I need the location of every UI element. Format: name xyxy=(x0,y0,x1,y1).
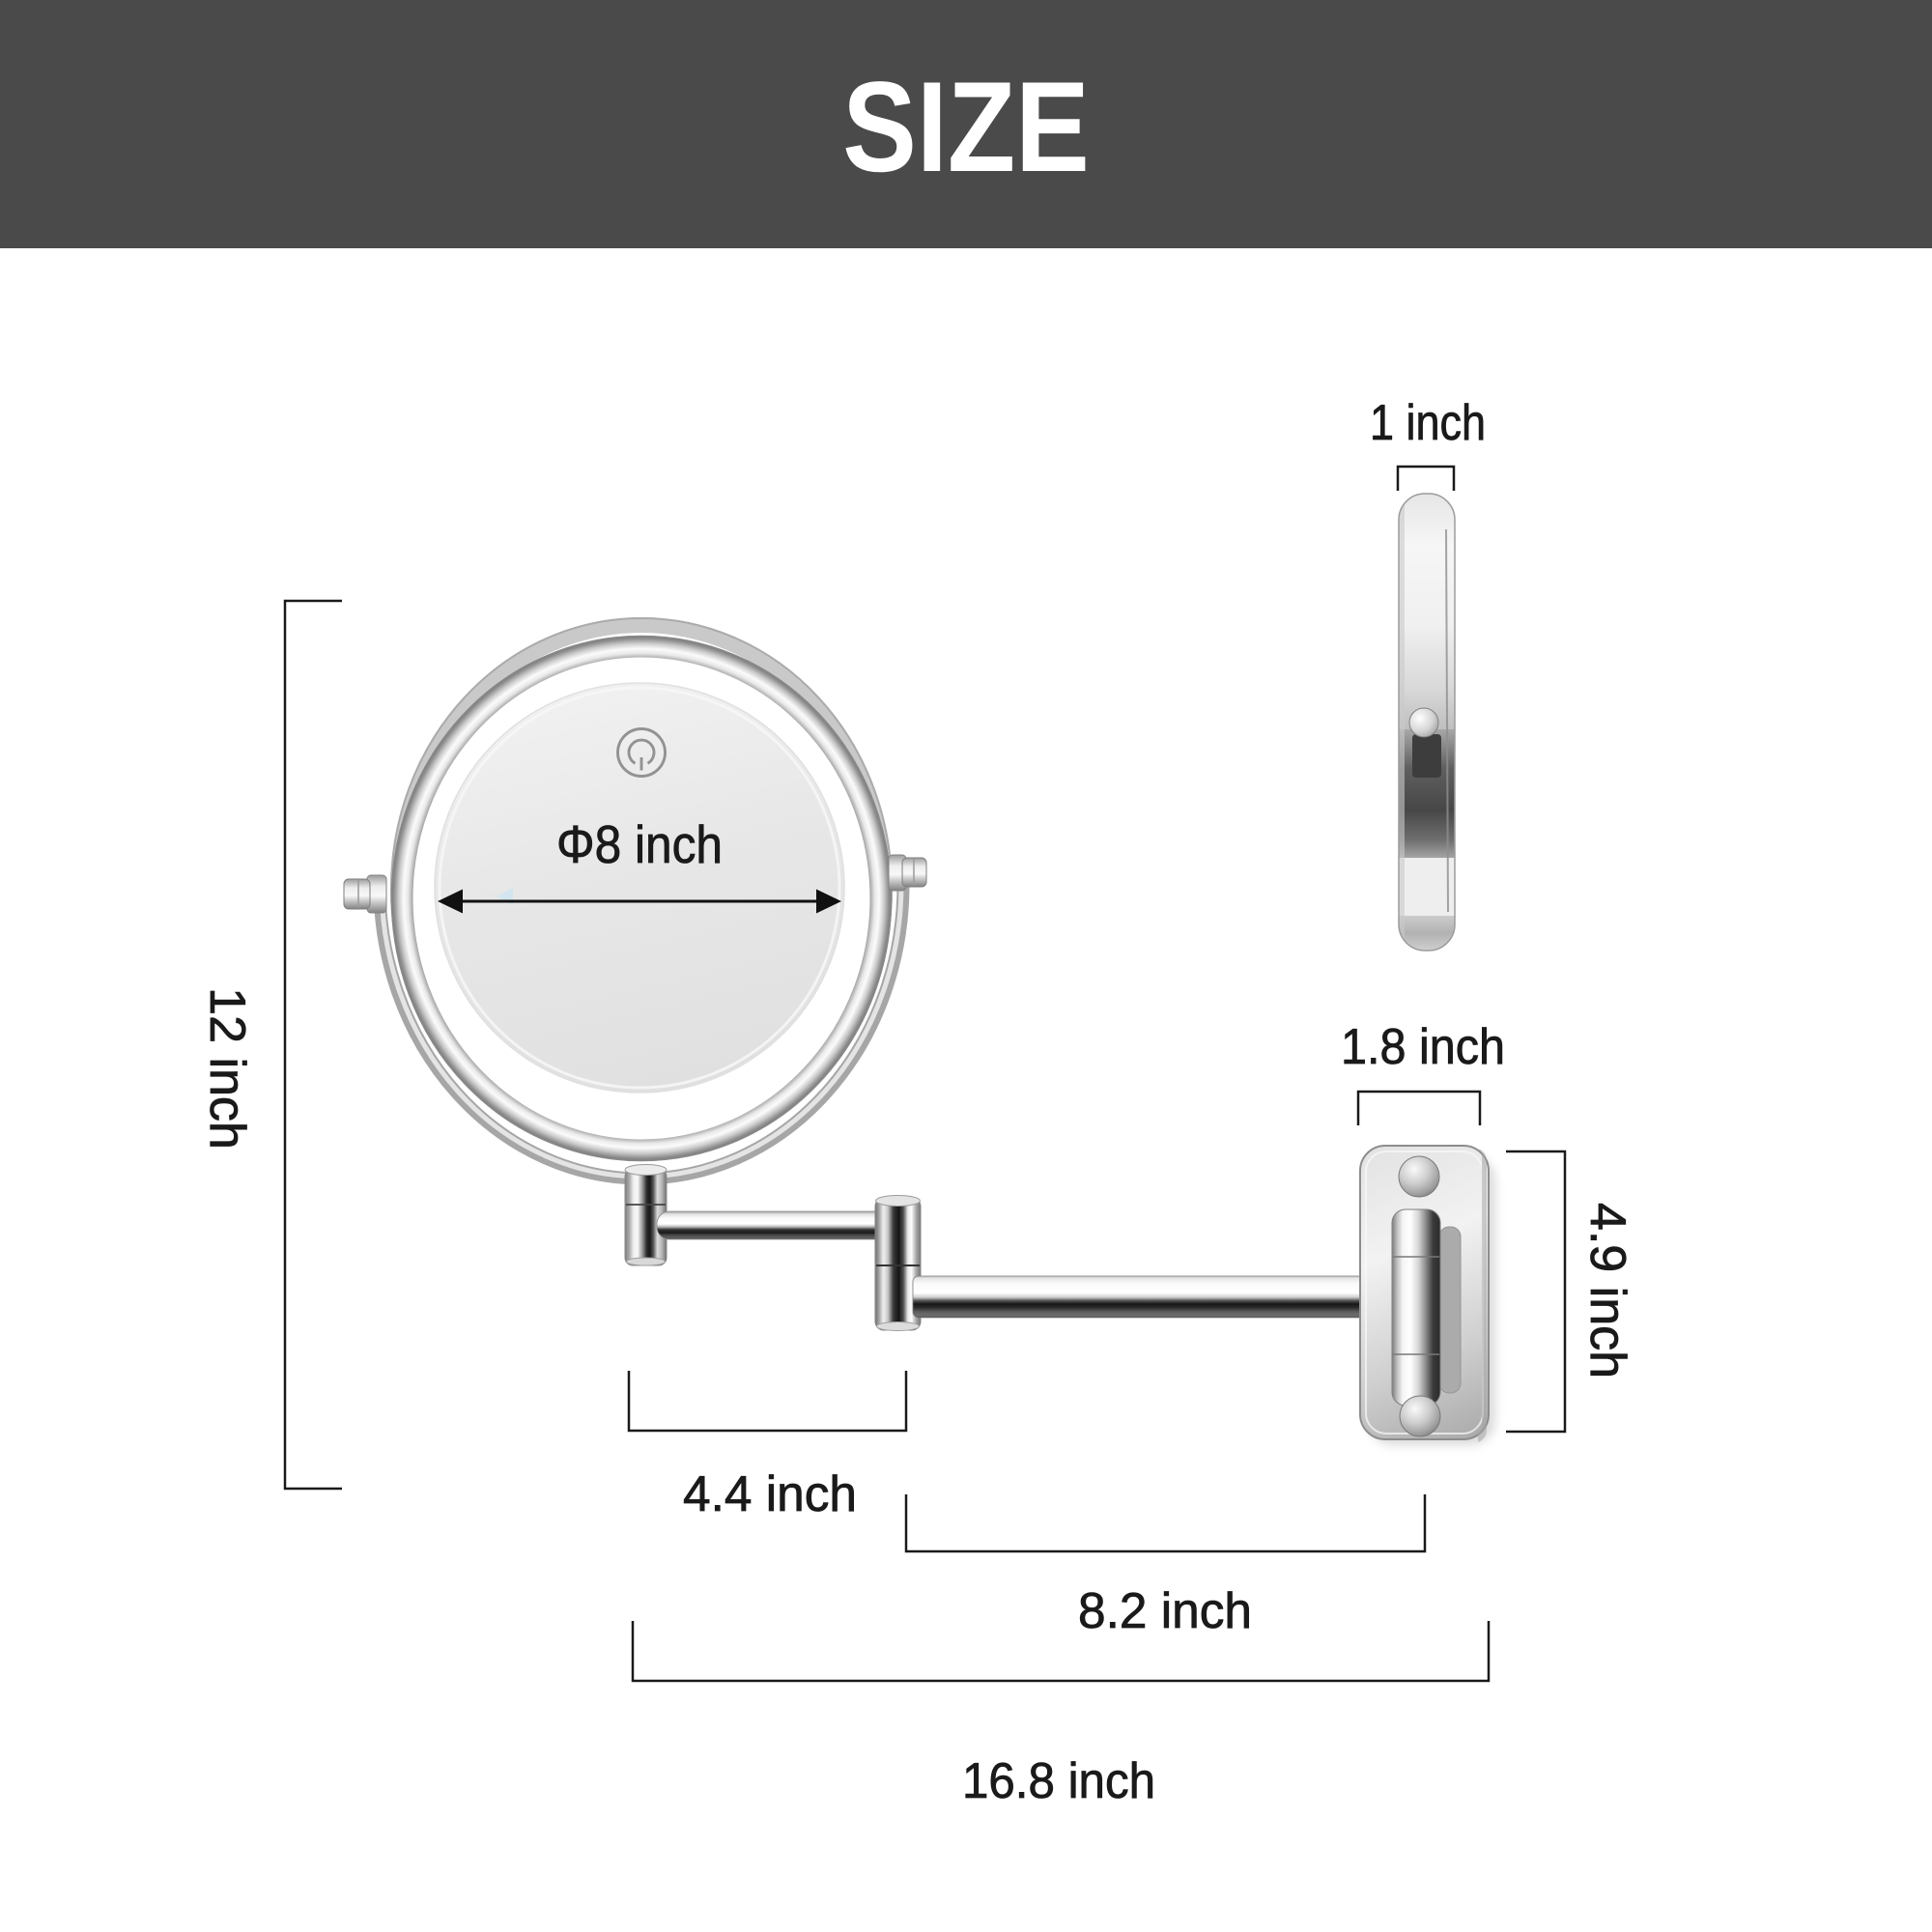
svg-text:SIZE: SIZE xyxy=(842,55,1090,199)
svg-text:1 inch: 1 inch xyxy=(1370,395,1486,451)
svg-text:12 inch: 12 inch xyxy=(199,987,255,1150)
svg-text:1.8 inch: 1.8 inch xyxy=(1341,1019,1505,1075)
svg-text:8.2 inch: 8.2 inch xyxy=(1078,1583,1252,1639)
svg-text:4.9 inch: 4.9 inch xyxy=(1579,1203,1635,1378)
svg-text:4.4 inch: 4.4 inch xyxy=(683,1466,857,1522)
svg-text:16.8 inch: 16.8 inch xyxy=(962,1753,1155,1809)
svg-text:Φ8 inch: Φ8 inch xyxy=(556,814,723,874)
